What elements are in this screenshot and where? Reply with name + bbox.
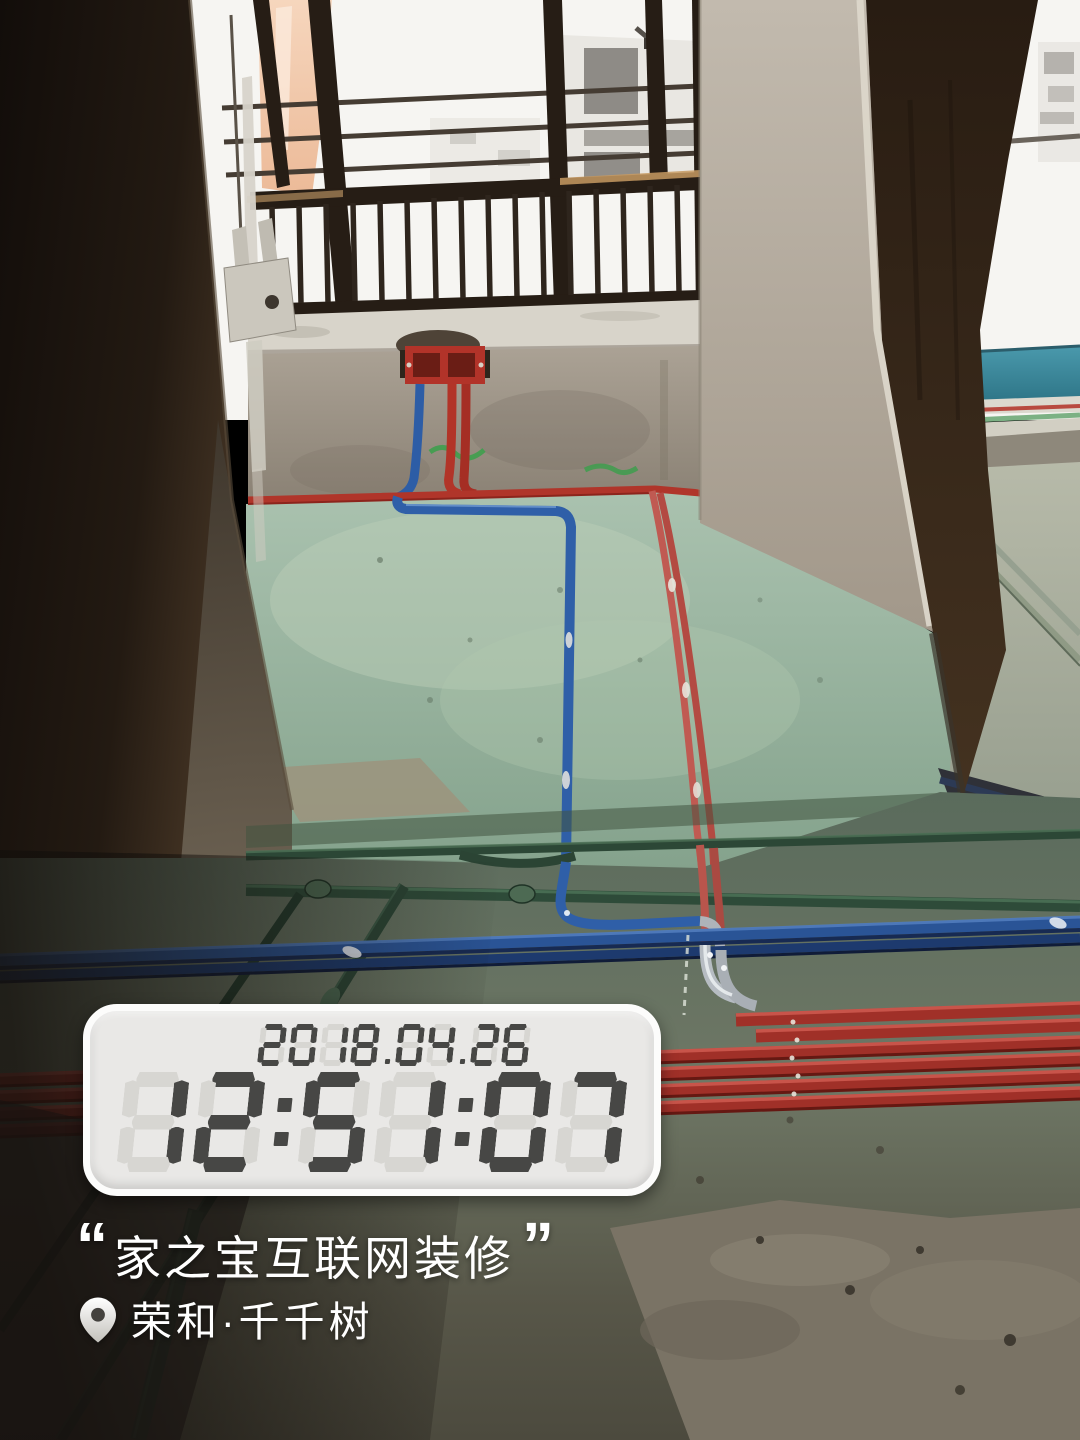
- timestamp-clock: [83, 1004, 661, 1196]
- construction-site-photo: “ 家之宝互联网装修 ” 荣和·千千树: [0, 0, 1080, 1440]
- watermark-location: 荣和·千千树: [80, 1297, 374, 1343]
- timestamp-date: [257, 1024, 531, 1066]
- caption-text: 家之宝互联网装修: [114, 1222, 514, 1282]
- open-quote-icon: “: [76, 1222, 106, 1268]
- location-text: 荣和·千千树: [131, 1298, 374, 1343]
- watermark-caption: “ 家之宝互联网装修 ”: [76, 1222, 552, 1282]
- map-pin-icon: [80, 1297, 116, 1343]
- left-pillar: [0, 0, 296, 874]
- close-quote-icon: ”: [522, 1222, 552, 1268]
- timestamp-time: [115, 1072, 629, 1172]
